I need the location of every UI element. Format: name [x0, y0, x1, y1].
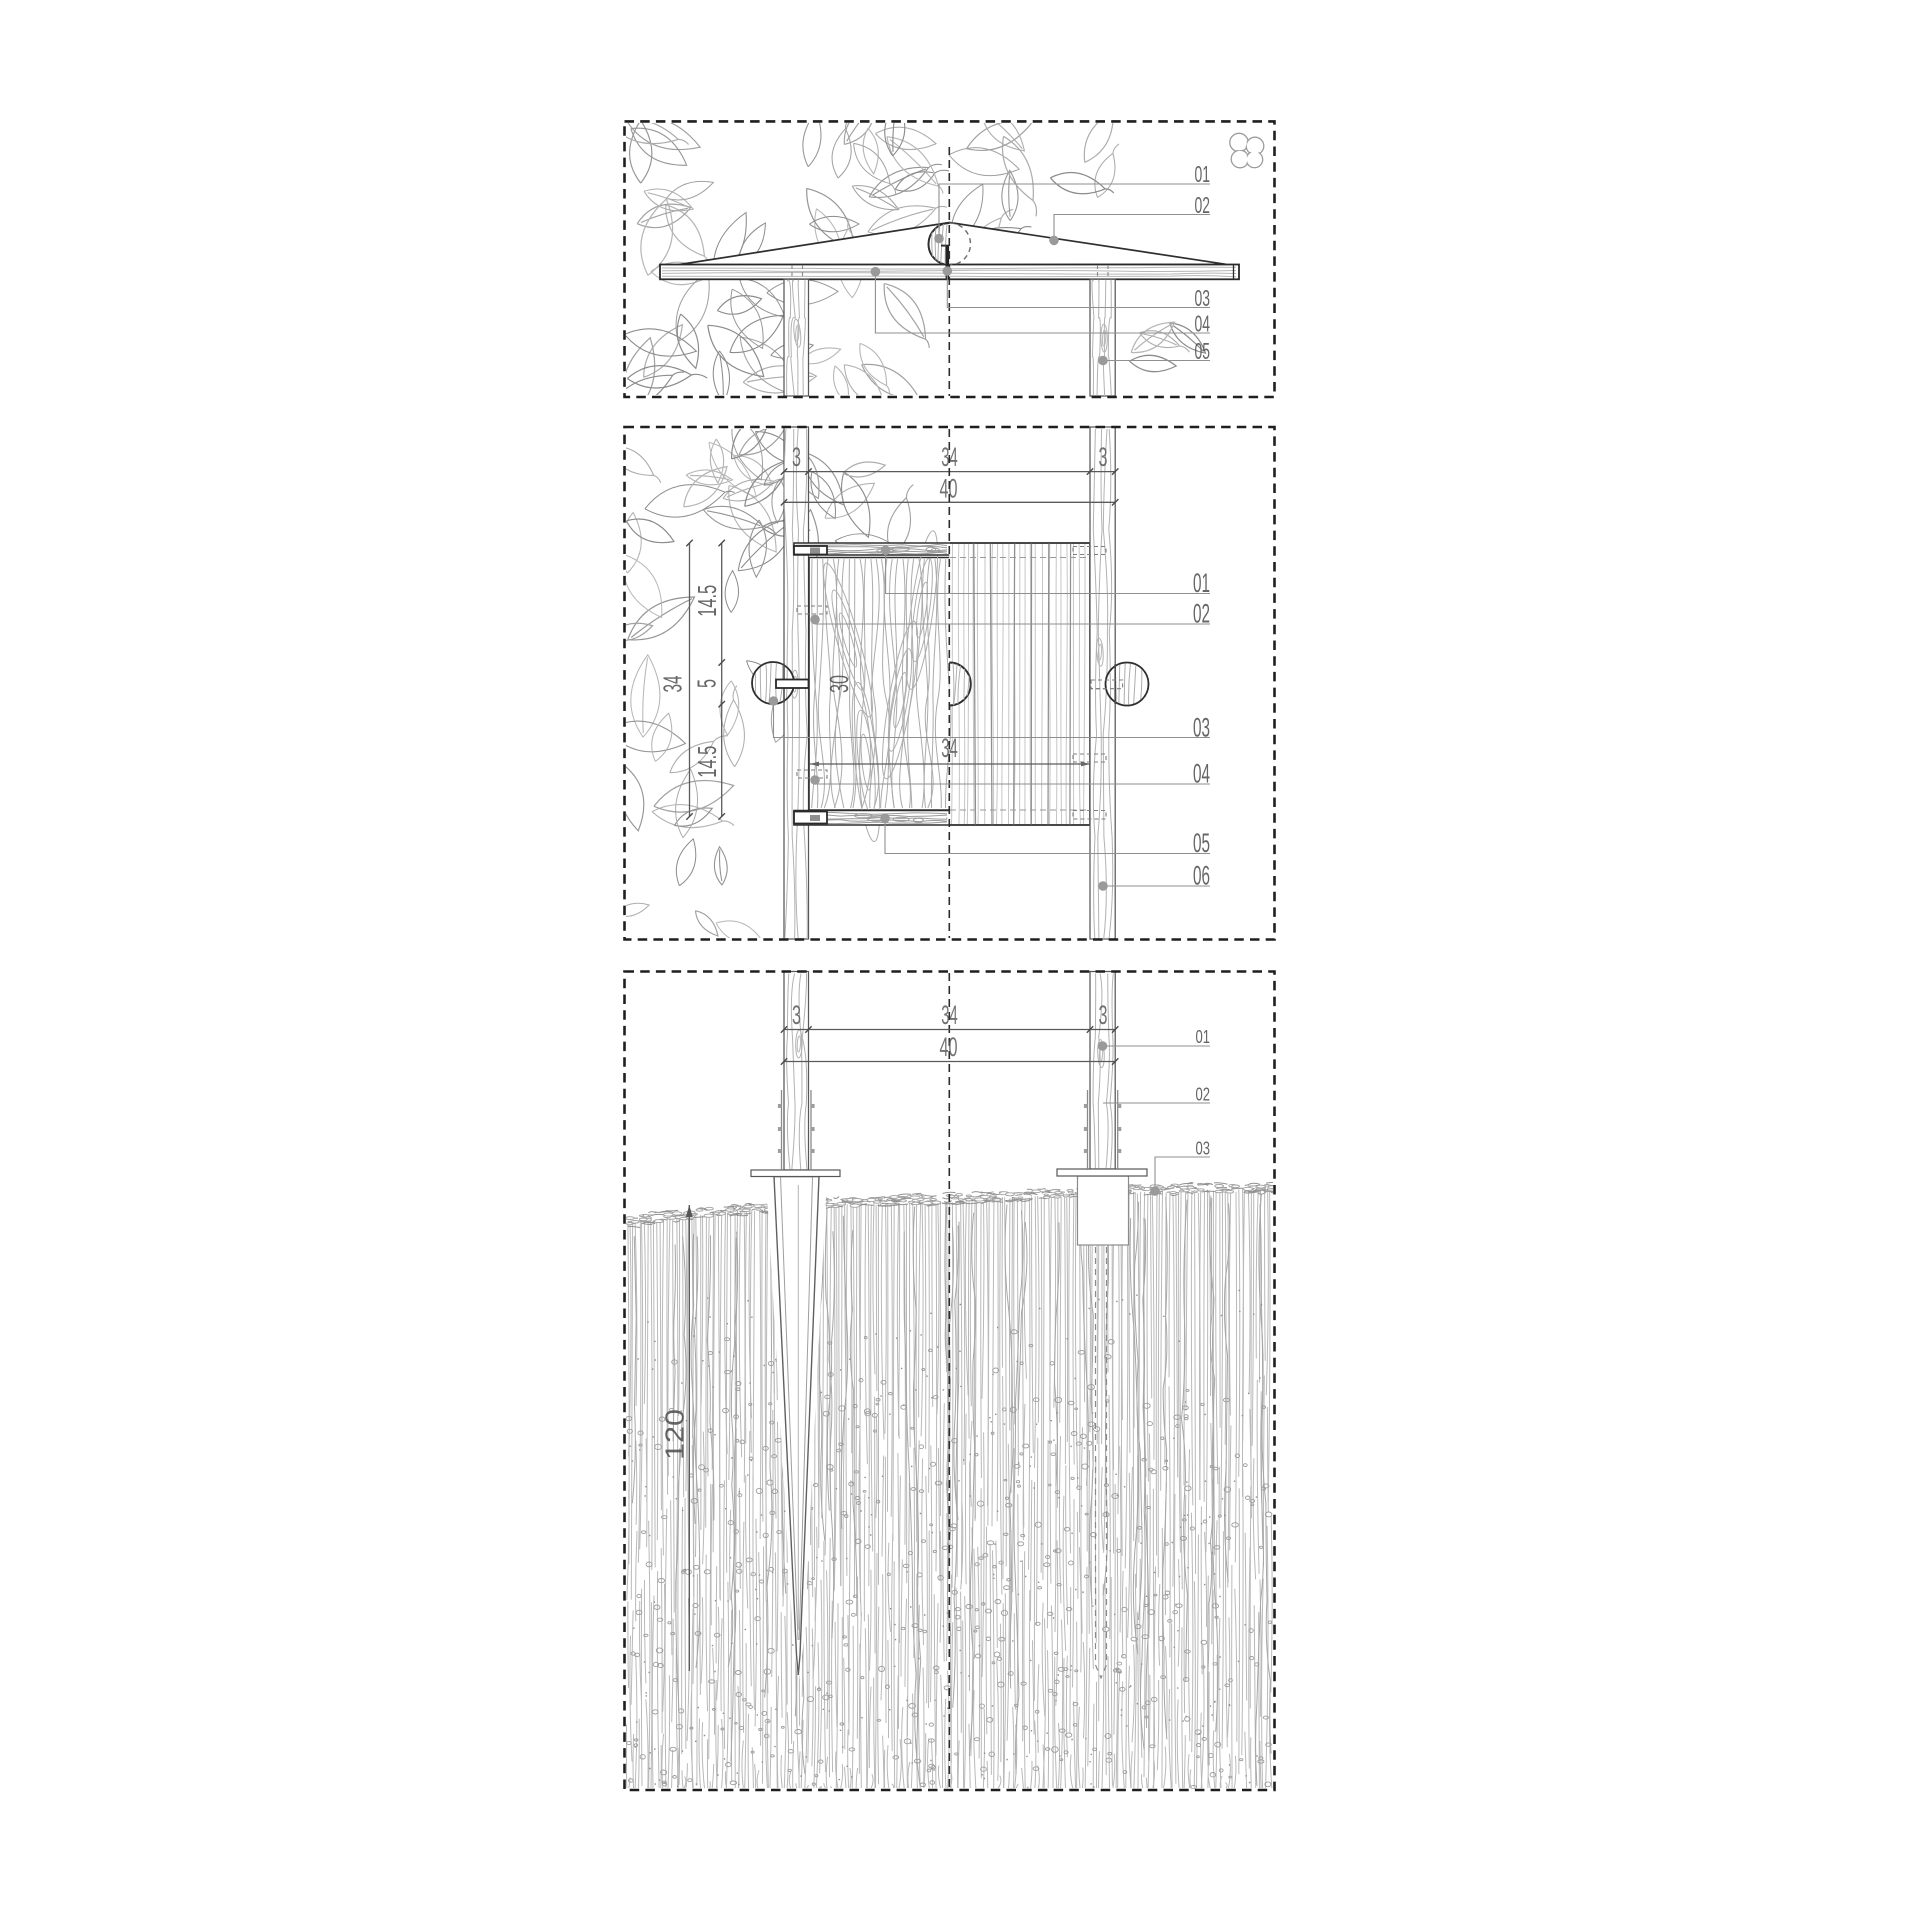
- svg-text:40: 40: [940, 1032, 958, 1062]
- svg-text:5: 5: [692, 679, 722, 688]
- svg-text:03: 03: [1196, 1139, 1211, 1159]
- svg-text:01: 01: [1193, 568, 1210, 598]
- svg-text:06: 06: [1193, 861, 1210, 891]
- svg-text:02: 02: [1195, 192, 1211, 218]
- svg-text:34: 34: [658, 676, 688, 693]
- svg-text:03: 03: [1193, 713, 1210, 743]
- svg-text:03: 03: [1195, 285, 1211, 311]
- svg-text:05: 05: [1193, 828, 1210, 858]
- svg-text:01: 01: [1196, 1027, 1211, 1047]
- svg-text:02: 02: [1196, 1085, 1211, 1105]
- svg-text:3: 3: [1099, 442, 1108, 472]
- svg-text:14.5: 14.5: [692, 746, 722, 778]
- svg-text:05: 05: [1195, 338, 1211, 364]
- svg-text:3: 3: [1099, 1000, 1108, 1030]
- svg-text:30: 30: [824, 675, 854, 693]
- svg-text:120: 120: [660, 1409, 690, 1460]
- svg-text:3: 3: [792, 442, 801, 472]
- svg-text:34: 34: [941, 1000, 958, 1030]
- svg-text:01: 01: [1195, 161, 1211, 187]
- svg-text:04: 04: [1195, 311, 1211, 337]
- svg-text:04: 04: [1193, 759, 1210, 789]
- svg-text:02: 02: [1193, 599, 1210, 629]
- svg-text:14.5: 14.5: [692, 585, 722, 617]
- svg-text:3: 3: [792, 1000, 801, 1030]
